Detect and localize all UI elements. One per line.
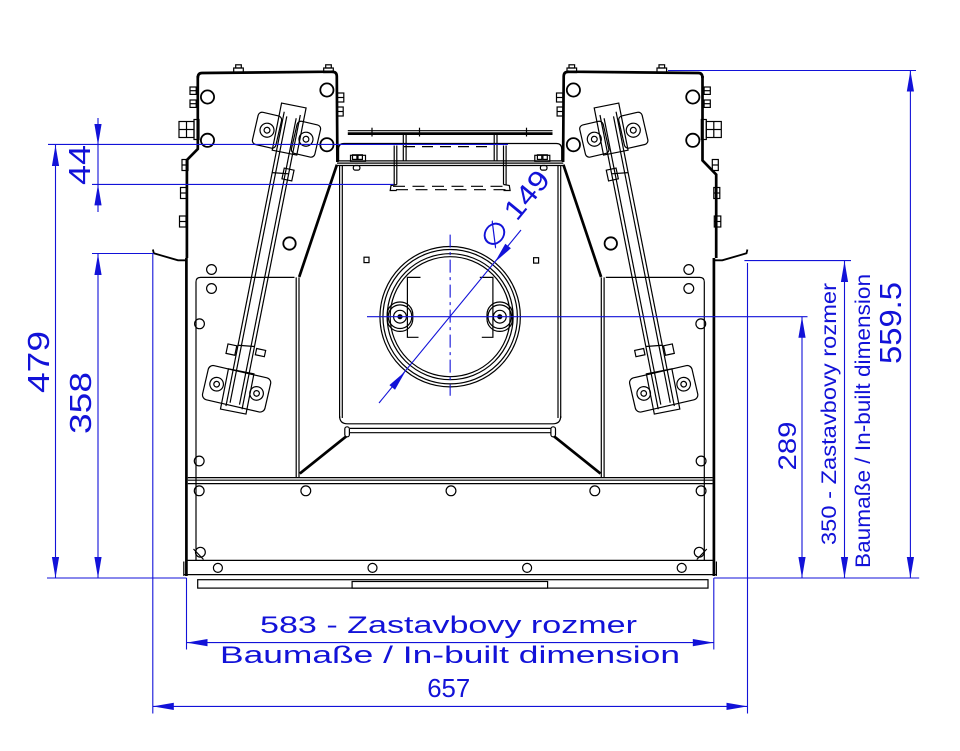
svg-text:Baumaße / In-built dimension: Baumaße / In-built dimension (220, 642, 680, 669)
svg-text:479: 479 (21, 331, 56, 393)
svg-text:583 - Zastavbovy rozmer: 583 - Zastavbovy rozmer (260, 612, 637, 639)
svg-text:289: 289 (774, 422, 802, 471)
svg-text:44: 44 (62, 145, 97, 185)
svg-text:559.5: 559.5 (873, 282, 908, 364)
svg-text:350 - Zastavbovy rozmer: 350 - Zastavbovy rozmer (818, 283, 841, 545)
svg-text:657: 657 (427, 673, 470, 703)
svg-text:358: 358 (63, 372, 98, 434)
svg-text:Baumaße / In-built dimension: Baumaße / In-built dimension (852, 274, 875, 568)
